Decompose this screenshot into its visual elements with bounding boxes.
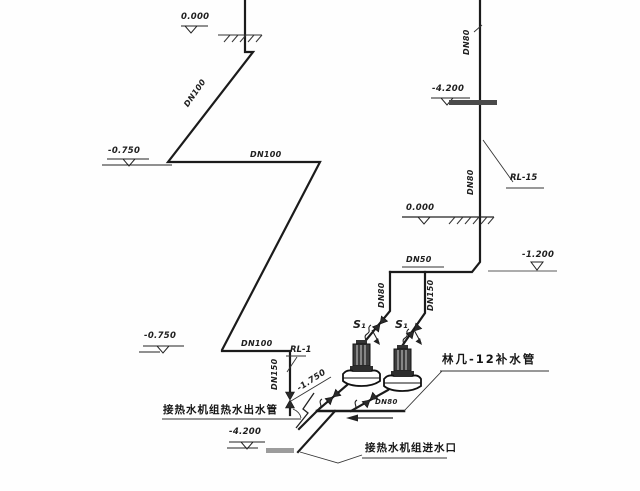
- elevation-label-upper-left: -0.750: [108, 147, 140, 156]
- elevation-markers: [102, 26, 557, 449]
- elevation-label-branch: -1.200: [522, 251, 554, 260]
- elevation-label-bottom: -4.200: [229, 428, 261, 437]
- pipe-label-lower-horizontal: DN100: [241, 340, 273, 348]
- elevation-label-riser-ground: 0.000: [406, 204, 434, 213]
- elevation-triangle-icon: [418, 217, 430, 224]
- pipe-diagram: [0, 0, 640, 491]
- ground-hatch-icon: [218, 35, 262, 42]
- ref-label-rl15: RL-15: [510, 174, 537, 183]
- elevation-label-top-left: 0.000: [181, 13, 209, 22]
- note-hot-water-outlet: 接热水机组热水出水管: [163, 405, 278, 416]
- note-makeup-pipe: 林几-12补水管: [442, 354, 536, 366]
- pipe-label-branch-horizontal: DN50: [406, 256, 432, 264]
- note-unit-inlet: 接热水机组进水口: [365, 443, 457, 454]
- hot-water-outlet-pipe: [168, 0, 320, 392]
- pump-tag-arrows: [372, 330, 422, 345]
- elevation-triangle-icon: [185, 26, 197, 33]
- pump-1-icon: [343, 340, 380, 386]
- unit-inlet-pipe: [298, 411, 335, 452]
- pipe-label-pump-header: DN80: [375, 399, 398, 406]
- flow-arrow-icon: [346, 415, 393, 422]
- elevation-label-lower-left: -0.750: [144, 332, 176, 341]
- pipe-label-pump-inlet-right: DN150: [427, 279, 435, 311]
- pump2-tag: S₁: [395, 319, 408, 330]
- pipe-label-riser-mid: DN80: [467, 169, 475, 195]
- leader-lines: [162, 25, 549, 463]
- floor-slab-bar: [449, 100, 497, 105]
- outlet-leader: [293, 409, 301, 418]
- ground-hatch-icon: [449, 217, 494, 224]
- pipe-label-pump-inlet-left: DN80: [378, 282, 386, 308]
- ref-label-rl1: RL-1: [290, 346, 311, 355]
- pipe-label-upper-horizontal: DN100: [250, 151, 282, 159]
- rl15-leader: [483, 140, 513, 182]
- pump-2-icon: [384, 345, 421, 391]
- rl1-leader: [287, 357, 297, 372]
- elevation-triangle-icon: [531, 262, 543, 270]
- pipe-label-riser-top: DN80: [463, 29, 471, 55]
- floor-slab-bar: [266, 448, 294, 453]
- inlet-leader: [300, 452, 362, 463]
- pipe-lines: [168, 0, 480, 452]
- pipe-label-outlet-riser: DN150: [271, 358, 279, 390]
- pump1-tag: S₁: [353, 319, 366, 330]
- piping-schematic-canvas: 0.000 -0.750 -4.200 0.000 -1.200 -0.750 …: [0, 0, 640, 491]
- elevation-label-riser-top: -4.200: [432, 85, 464, 94]
